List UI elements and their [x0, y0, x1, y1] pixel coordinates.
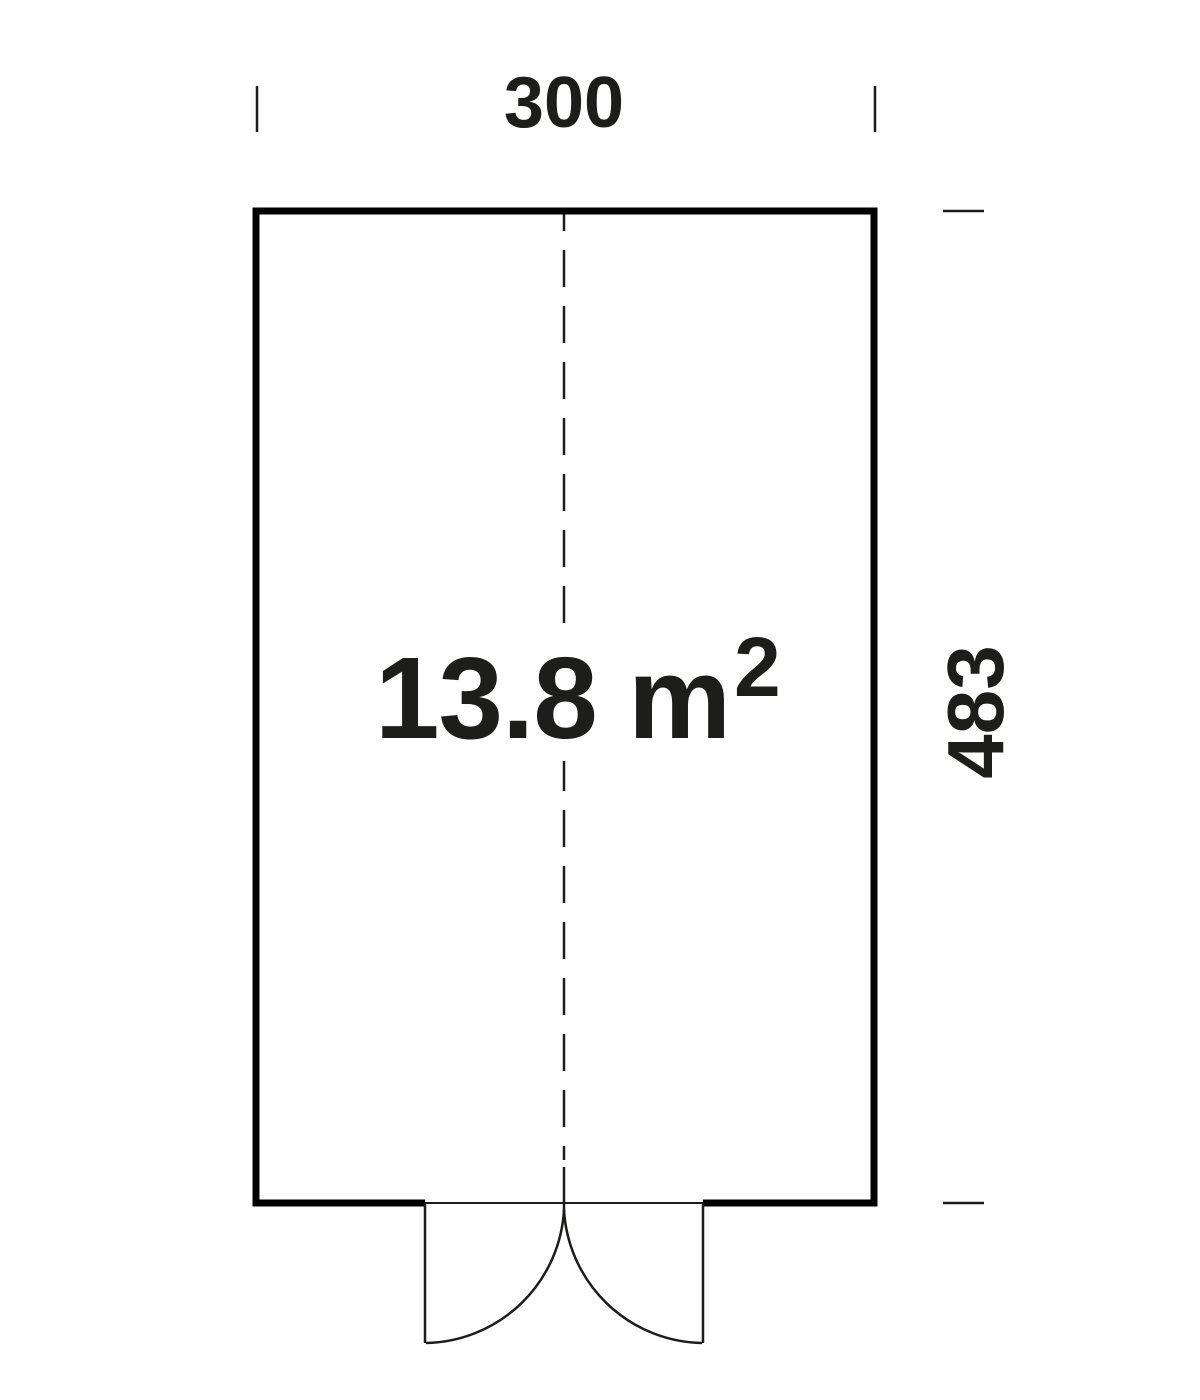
- area-label-exponent: 2: [734, 620, 781, 714]
- floor-plan-drawing: 300 483 13.8 m 2: [0, 0, 1200, 1400]
- area-label: 13.8 m: [375, 633, 730, 763]
- right-door-swing-arc: [564, 1210, 702, 1343]
- floor-plan-page: 300 483 13.8 m 2: [0, 0, 1200, 1400]
- left-door-swing-arc: [426, 1210, 564, 1343]
- height-dim-label: 483: [931, 645, 1020, 778]
- width-dim-label: 300: [504, 63, 624, 143]
